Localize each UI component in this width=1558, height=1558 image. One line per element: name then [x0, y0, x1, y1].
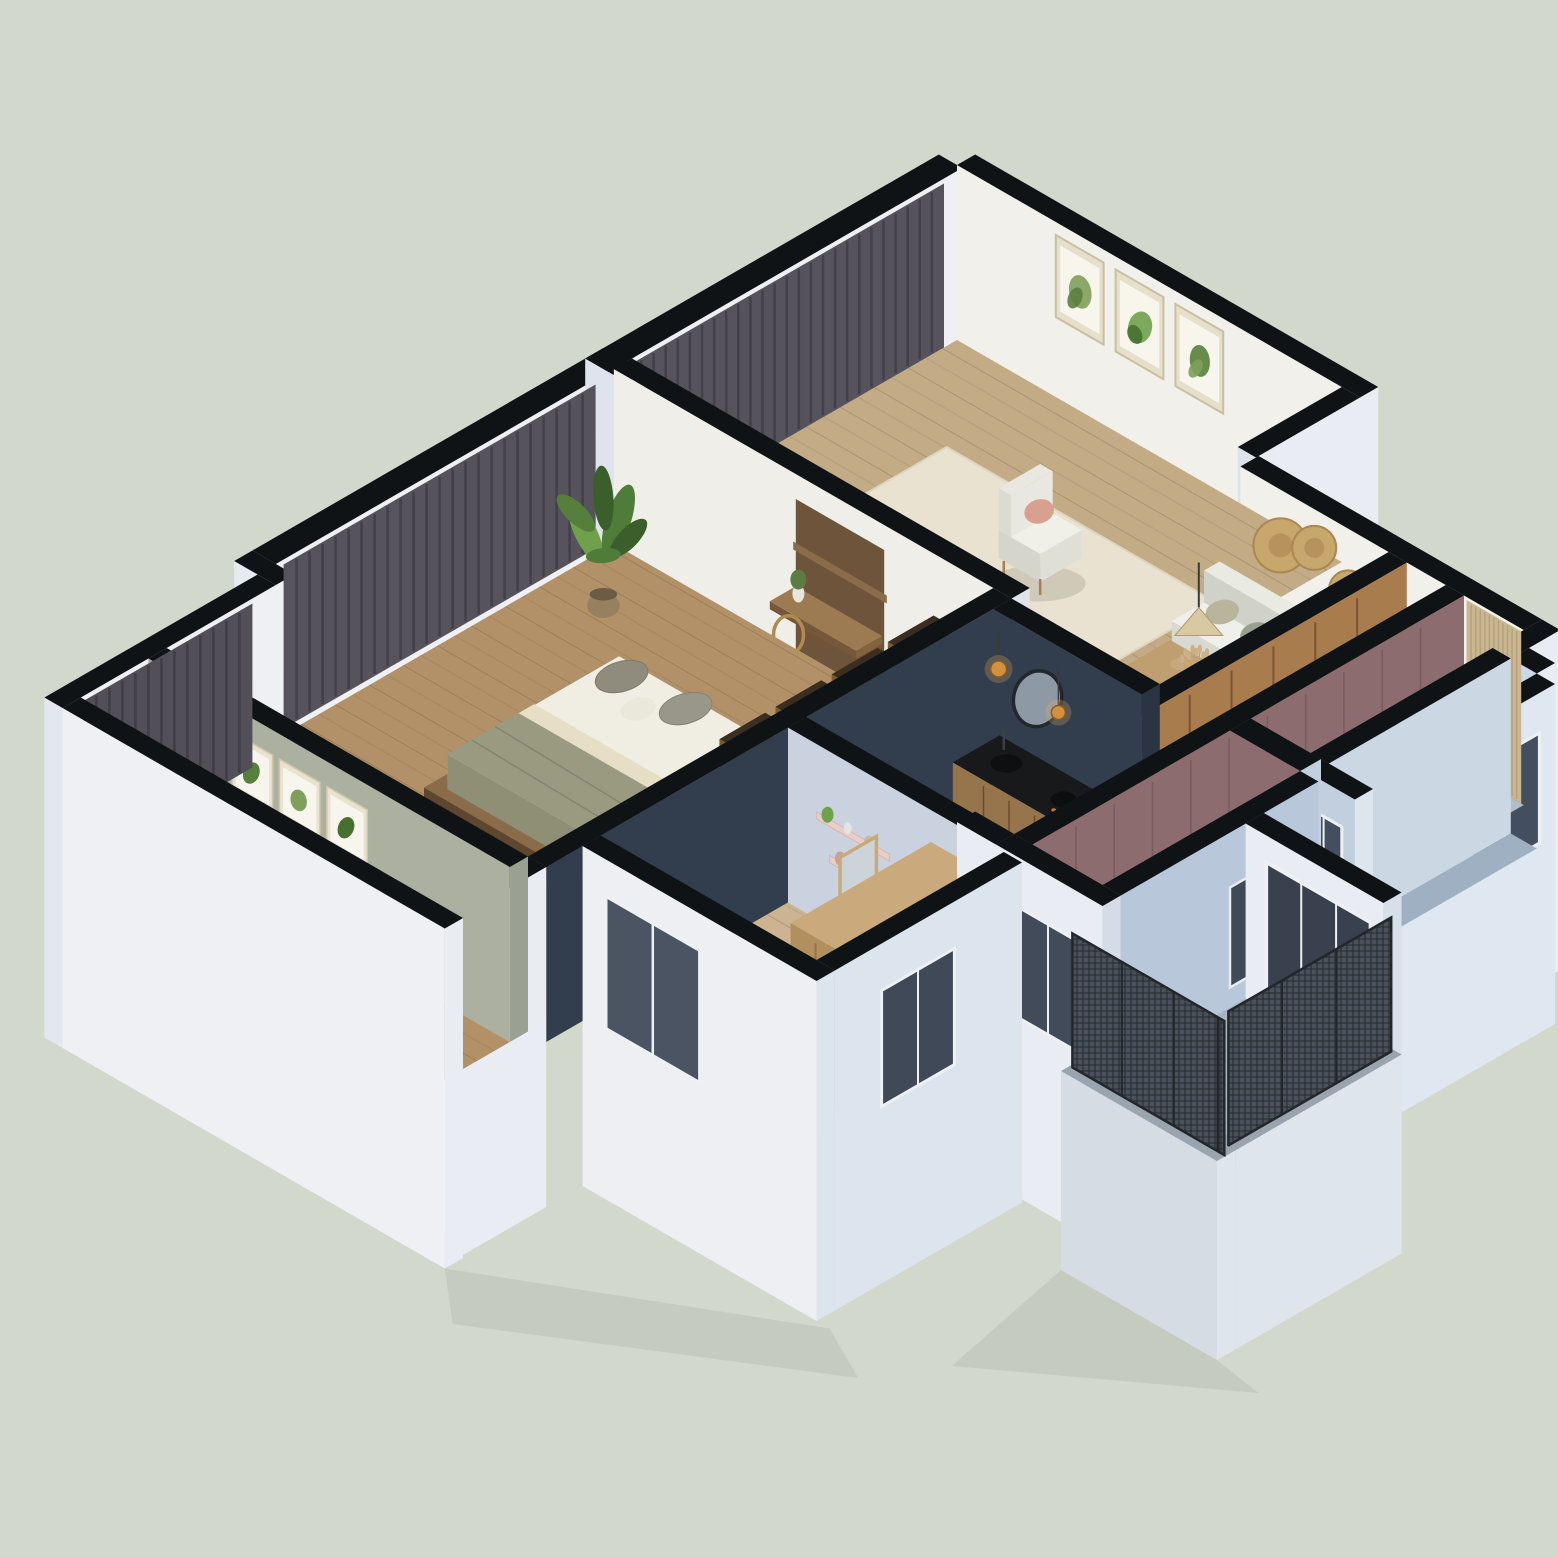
scene-root — [44, 155, 1558, 1394]
table-dried-flowers-tip — [1180, 655, 1184, 664]
wall-ext-nw-lower-face-sw — [44, 698, 62, 1049]
wall-ext-sw-closet-face-se — [817, 971, 835, 1322]
table-dried-flowers-tip — [1205, 648, 1209, 657]
desk-plant — [790, 570, 806, 590]
straw-hat-crown — [1268, 533, 1292, 557]
apartment-floorplan-render — [0, 0, 1558, 1558]
kitchen-sink — [990, 755, 1022, 773]
table-dried-flowers-tip — [1187, 651, 1191, 660]
bedroom-banana-plant-pot-rim — [590, 588, 618, 601]
wall-ext-sw-big-face-se — [445, 918, 463, 1269]
pendant-bulb — [1051, 706, 1065, 720]
shelf-plant — [822, 807, 834, 823]
shelf-vase — [844, 822, 852, 834]
pendant-bulb — [991, 661, 1007, 677]
balcony-slab-south-face-se — [1217, 1151, 1235, 1361]
table-dried-flowers-tip — [1198, 645, 1202, 654]
isometric-scene-canvas — [0, 0, 1558, 1558]
armchair-back-face-sw — [999, 488, 1012, 537]
straw-hat-crown — [1304, 538, 1324, 558]
wall-gallery-face-se — [510, 857, 528, 1043]
